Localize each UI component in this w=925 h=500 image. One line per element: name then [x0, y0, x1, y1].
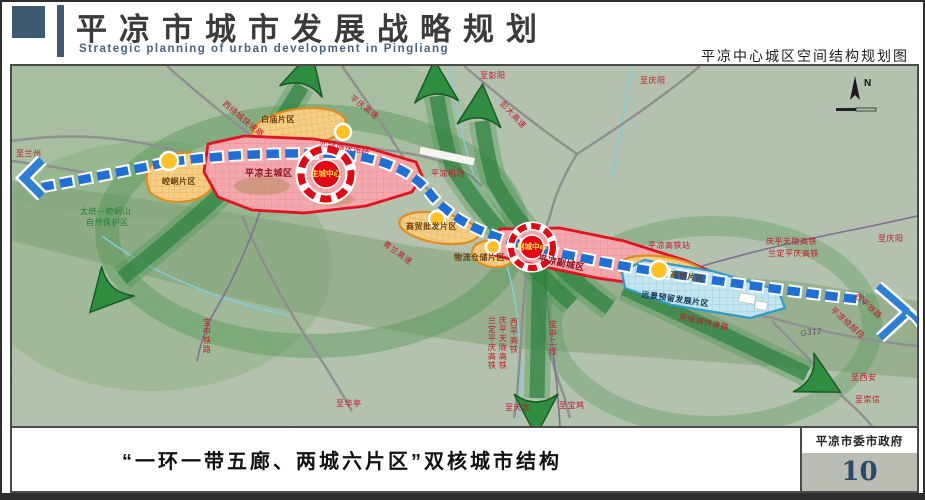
map-label: 副城中心	[517, 243, 547, 251]
page-number: 10	[802, 453, 917, 491]
map-label: 至庆阳	[878, 235, 904, 243]
map-label: 主城中心	[311, 170, 341, 178]
map-sheet-title: 平凉中心城区空间结构规划图	[701, 46, 909, 66]
map-label: 崆峒片区	[162, 178, 196, 186]
planning-map: N 至兰州太统—崆峒山自然保护区崆峒片区平凉主城区主城中心白庙片区西绕城快速路北…	[10, 64, 919, 428]
map-label: 兰定平庆高铁	[768, 250, 819, 258]
map-label: 至宝鸡	[559, 402, 585, 410]
map-label: 兰定平庆高铁	[487, 316, 495, 370]
map-label: 太统—崆峒山	[80, 208, 131, 216]
map-label: 至西安	[851, 374, 877, 382]
map-label: 至庆阳	[640, 77, 666, 85]
map-label: 西平高铁	[509, 318, 517, 354]
map-label: 至天水	[505, 404, 531, 412]
structure-caption: “一环一带五廊、两城六片区”双核城市结构	[12, 428, 672, 491]
footer-infobox: 平凉市委市政府 10	[800, 428, 917, 491]
organization-label: 平凉市委市政府	[802, 428, 917, 453]
map-label: 平凉主城区	[245, 169, 293, 178]
map-label: 至崇信	[855, 396, 881, 404]
map-label: 庆平天陇高铁	[766, 238, 817, 246]
map-label: 自然保护区	[86, 219, 129, 227]
footer: “一环一带五廊、两城六片区”双核城市结构 平凉市委市政府 10	[10, 428, 919, 493]
planning-poster-page: 平凉市城市发展战略规划 Strategic planning of urban …	[0, 0, 925, 500]
svg-text:N: N	[864, 78, 871, 89]
map-label: 平凉机场	[431, 170, 465, 178]
map-label: 宝中二线	[548, 320, 556, 356]
map-label: 至彭阳	[480, 72, 506, 80]
map-label: 平凉高铁站	[648, 242, 691, 250]
header-bar-decoration	[57, 5, 64, 57]
page-title-english: Strategic planning of urban development …	[79, 43, 449, 55]
map-label: 宝中铁路	[202, 318, 210, 354]
map-label: 商贸批发片区	[406, 223, 457, 231]
map-label: 至兰州	[16, 150, 42, 158]
map-label: 至华亭	[336, 400, 362, 408]
header-square-decoration	[12, 6, 45, 38]
map-label: 白庙片区	[261, 116, 295, 124]
map-label: 物流仓储片区	[454, 254, 505, 262]
header: 平凉市城市发展战略规划 Strategic planning of urban …	[2, 2, 923, 64]
map-label: 庆平天陇高铁	[498, 316, 506, 370]
